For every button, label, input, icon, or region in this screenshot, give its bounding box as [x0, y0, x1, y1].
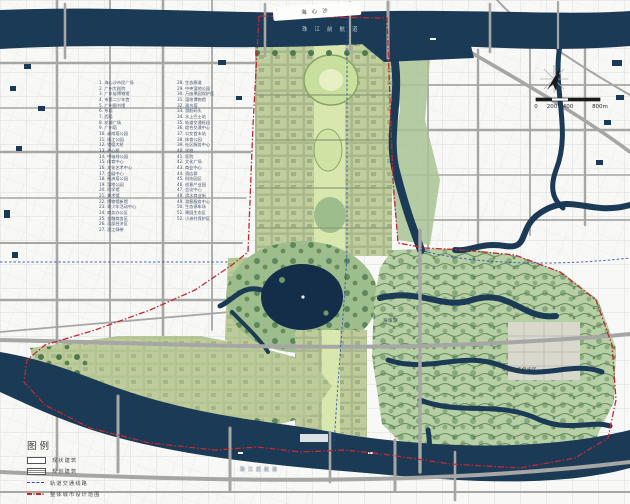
scale-tick-400: 400: [563, 104, 574, 110]
legend-item-planned-building: 规划建筑: [27, 468, 147, 474]
planned-building-swatch-icon: [27, 468, 46, 475]
design-boundary-swatch-icon: [27, 493, 44, 495]
landmark-list-col1: 1. 海心沙市民广场2. 广州大剧院3. 广东省博物馆4. 市第二少年宫5. 广…: [99, 80, 172, 233]
north-arrow-icon: [540, 65, 568, 93]
legend-title: 图例: [27, 438, 147, 452]
rear-channel-label: 珠江后航道: [240, 466, 280, 473]
lake-label: 海珠湖: [383, 318, 398, 324]
existing-building-swatch-icon: [27, 457, 46, 464]
legend-item-existing-building: 现状建筑: [27, 457, 147, 463]
landmark-list-item: 52. 小洲村保护区: [177, 216, 250, 222]
central-axis-district: [255, 42, 392, 256]
scale-tick-0: 0: [534, 104, 538, 110]
orchard-label: 果园生态保护区: [502, 367, 537, 373]
front-channel-label: 珠江前航道: [302, 25, 365, 33]
landmark-list-item: 27. 滨江绿带: [99, 227, 172, 233]
landmark-list-col2: 28. 生态廊道29. 中央湿地公园30. 万亩果园保护区31. 湿地博物馆32…: [177, 80, 250, 233]
rail-line-swatch-icon: [27, 482, 44, 483]
scale-tick-800: 800m: [592, 104, 608, 110]
scale-tick-200: 200: [547, 104, 558, 110]
legend-item-rail-line: 轨道交通线路: [27, 480, 147, 486]
landmark-list: 1. 海心沙市民广场2. 广州大剧院3. 广东省博物馆4. 市第二少年宫5. 广…: [99, 80, 250, 233]
legend: 图例 现状建筑 规划建筑 轨道交通线路 整体城市设计范围: [27, 438, 147, 497]
legend-item-design-boundary: 整体城市设计范围: [27, 491, 147, 497]
map-canvas: 0 200 400 800m: [0, 0, 630, 504]
master-plan-map: 0 200 400 800m 1. 海心沙市民广场2. 广州大剧院3. 广东省博…: [0, 0, 630, 504]
